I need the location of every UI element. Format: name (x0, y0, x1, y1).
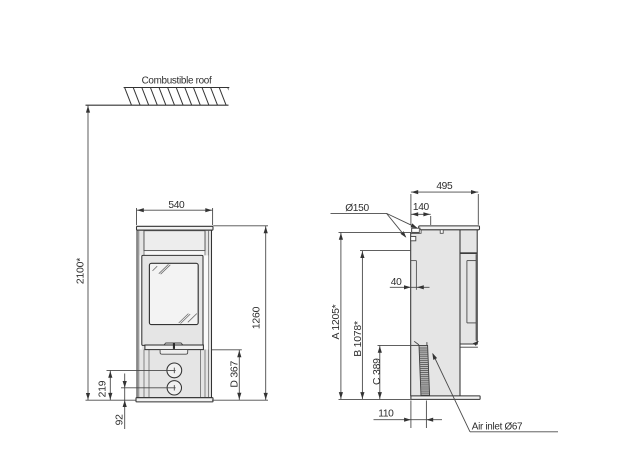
svg-text:110: 110 (378, 408, 394, 419)
svg-text:Air inlet Ø67: Air inlet Ø67 (472, 422, 522, 433)
svg-text:495: 495 (436, 181, 453, 192)
svg-text:C 389: C 389 (372, 358, 383, 385)
svg-text:A 1205*: A 1205* (331, 304, 342, 339)
svg-text:219: 219 (97, 380, 108, 397)
svg-text:1260: 1260 (251, 306, 262, 329)
svg-text:Combustible roof: Combustible roof (142, 75, 212, 86)
svg-text:B 1078*: B 1078* (353, 321, 364, 357)
svg-text:D 367: D 367 (229, 361, 240, 388)
svg-text:92: 92 (114, 414, 125, 426)
svg-text:540: 540 (168, 200, 185, 211)
svg-text:40: 40 (391, 277, 402, 288)
svg-text:2100*: 2100* (75, 258, 86, 284)
svg-text:Ø150: Ø150 (345, 203, 369, 214)
svg-text:140: 140 (413, 202, 430, 213)
